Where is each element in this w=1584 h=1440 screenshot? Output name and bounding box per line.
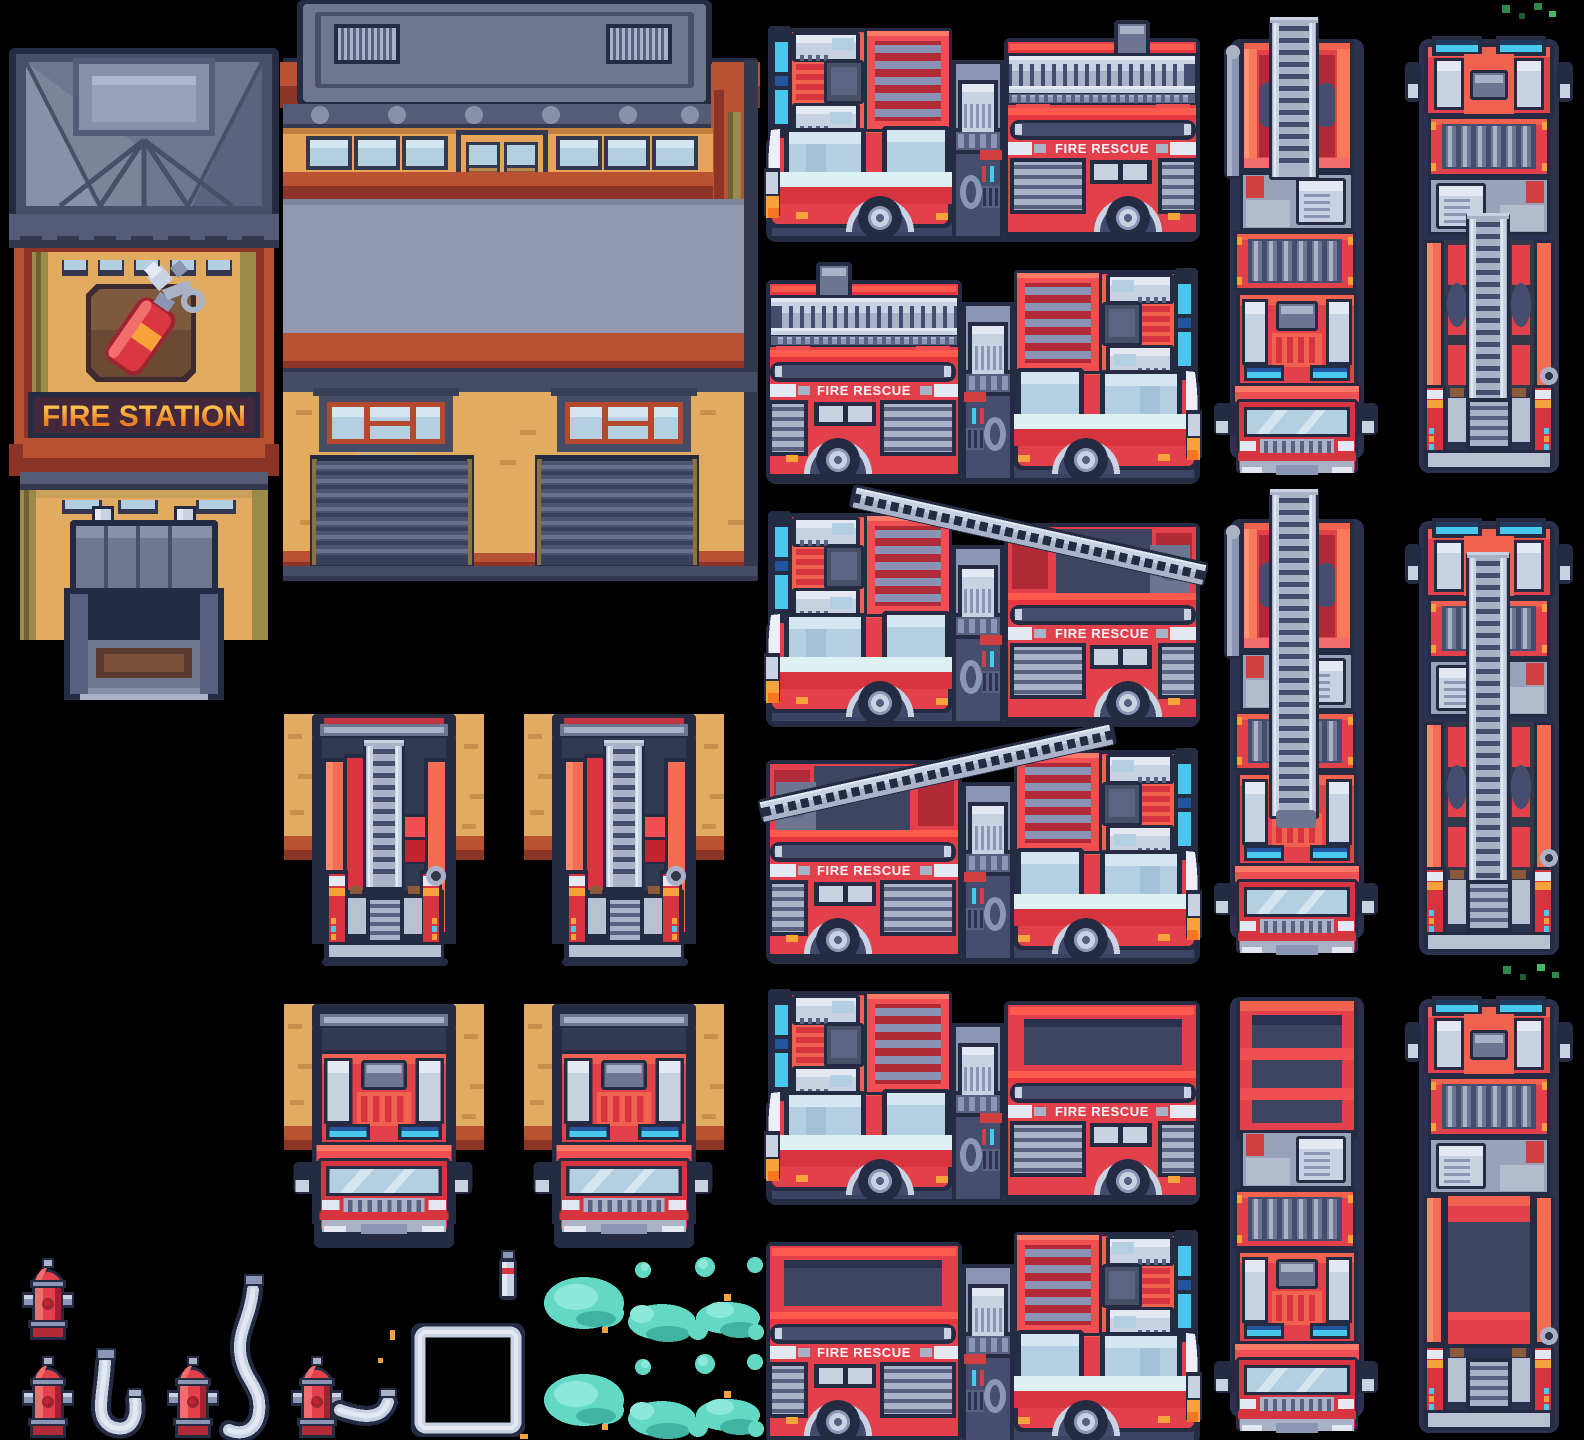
- svg-text:FIRE RESCUE: FIRE RESCUE: [1055, 1104, 1149, 1119]
- svg-text:FIRE RESCUE: FIRE RESCUE: [817, 863, 911, 878]
- svg-text:FIRE RESCUE: FIRE RESCUE: [817, 383, 911, 398]
- svg-text:FIRE RESCUE: FIRE RESCUE: [1055, 626, 1149, 641]
- svg-text:FIRE RESCUE: FIRE RESCUE: [1055, 141, 1149, 156]
- svg-text:FIRE RESCUE: FIRE RESCUE: [817, 1345, 911, 1360]
- svg-text:FIRE STATION: FIRE STATION: [42, 400, 246, 433]
